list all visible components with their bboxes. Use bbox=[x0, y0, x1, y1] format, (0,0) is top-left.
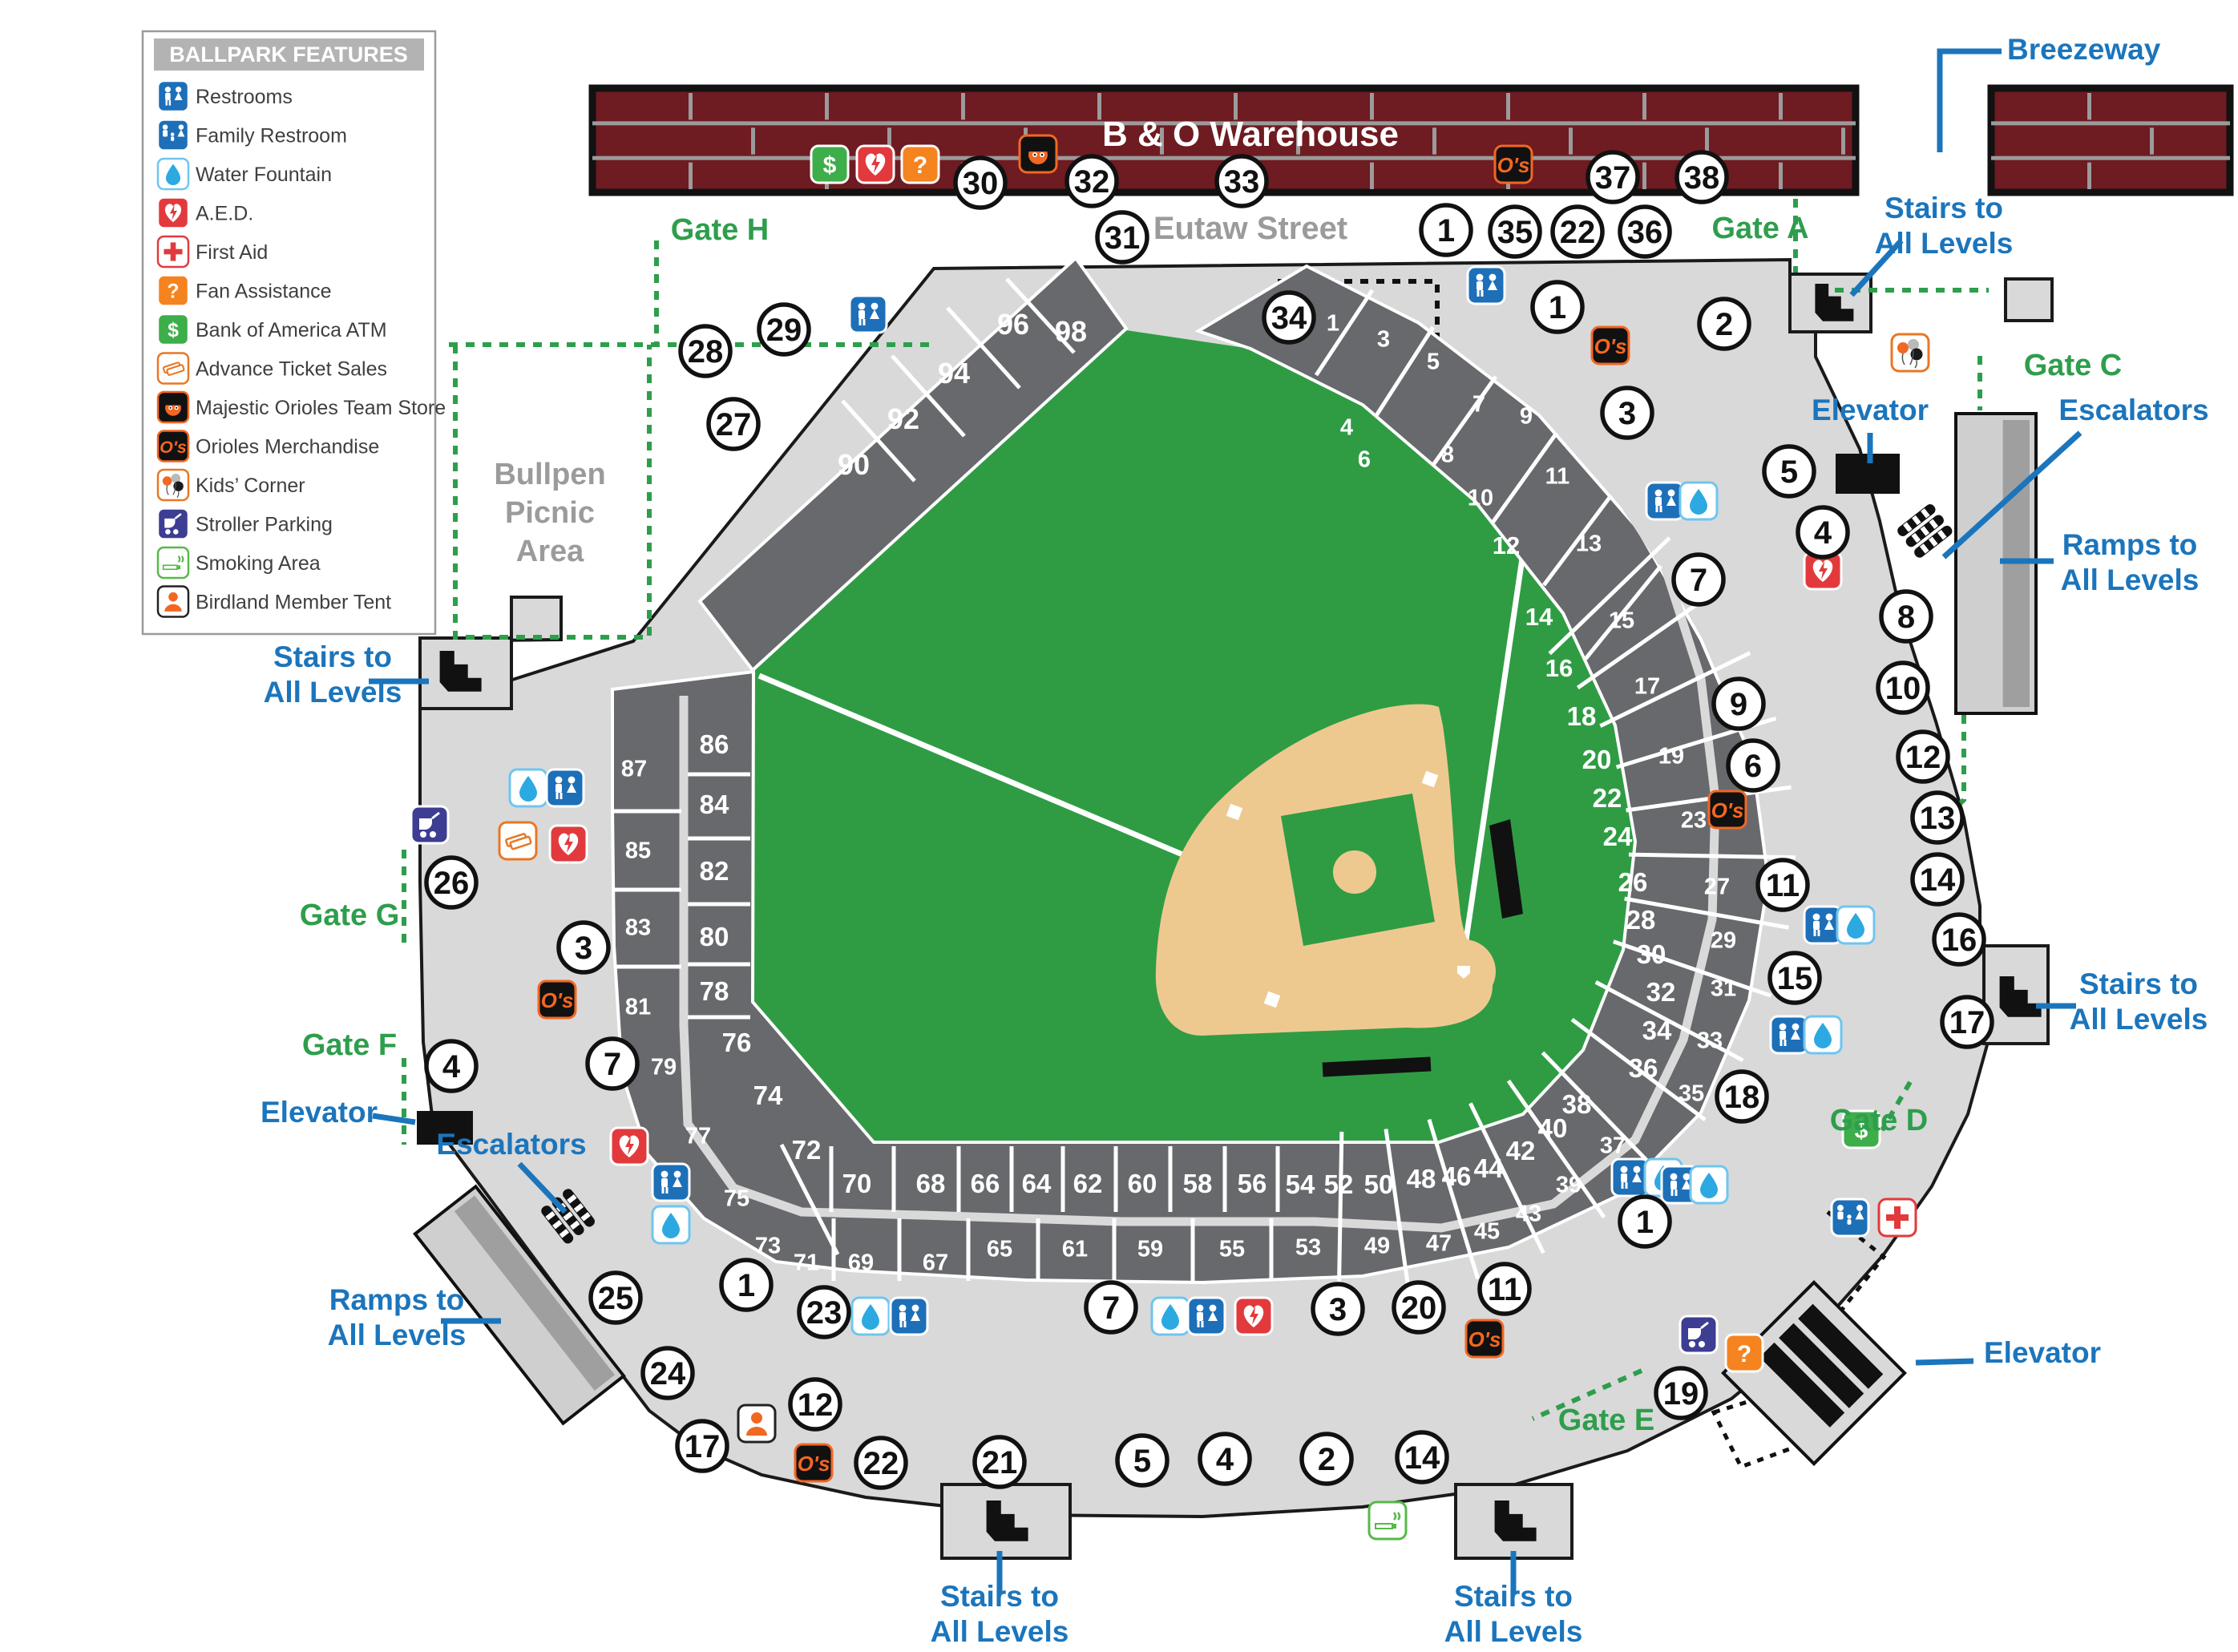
water-icon bbox=[1837, 907, 1874, 943]
section-61: 61 bbox=[1062, 1236, 1088, 1262]
marker-1: 1 bbox=[721, 1260, 771, 1310]
legend-item-label: Water Fountain bbox=[196, 164, 332, 186]
marker-1: 1 bbox=[1620, 1197, 1670, 1246]
icon-glyph bbox=[863, 319, 866, 325]
icon-glyph bbox=[1671, 1190, 1674, 1196]
section-35: 35 bbox=[1678, 1080, 1704, 1106]
section-45: 45 bbox=[1474, 1218, 1500, 1244]
warehouse-wall-right bbox=[1991, 88, 2230, 192]
section-6: 6 bbox=[1358, 446, 1371, 472]
icon-bg bbox=[891, 1298, 927, 1335]
marker-number: 7 bbox=[604, 1047, 621, 1082]
marker-3: 3 bbox=[1313, 1284, 1363, 1334]
section-14: 14 bbox=[1525, 603, 1553, 631]
icon-glyph bbox=[177, 565, 180, 569]
marker-number: 1 bbox=[1636, 1205, 1654, 1240]
brick-wall bbox=[1991, 88, 2230, 192]
icon-glyph bbox=[1655, 490, 1662, 497]
marker-2: 2 bbox=[1699, 299, 1749, 349]
icon-glyph bbox=[1792, 1024, 1800, 1031]
icon-glyph bbox=[666, 1187, 669, 1194]
marker-32: 32 bbox=[1067, 156, 1117, 206]
section-65: 65 bbox=[987, 1236, 1012, 1262]
icon-glyph bbox=[1683, 1173, 1691, 1181]
section-49: 49 bbox=[1364, 1233, 1390, 1258]
marker-12: 12 bbox=[790, 1379, 840, 1429]
elevator-label-left: Elevator bbox=[261, 1096, 378, 1129]
icon-bg bbox=[850, 296, 887, 333]
icon-glyph bbox=[871, 303, 879, 310]
restroom-icon bbox=[158, 81, 188, 111]
merch-icon: O's bbox=[1709, 791, 1746, 828]
marker-number: 29 bbox=[766, 313, 802, 348]
section-54: 54 bbox=[1286, 1169, 1315, 1199]
section-71: 71 bbox=[794, 1250, 819, 1275]
section-79: 79 bbox=[651, 1054, 677, 1080]
brick-grout bbox=[689, 93, 693, 119]
brick-grout bbox=[689, 163, 693, 189]
icon-glyph bbox=[171, 132, 175, 136]
orioles-merchandise-icon: O's bbox=[158, 431, 188, 462]
stairs-label-left: Stairs toAll Levels bbox=[264, 640, 402, 709]
brick-grout bbox=[2150, 127, 2154, 154]
icon-glyph: O's bbox=[160, 438, 187, 457]
icon-glyph bbox=[751, 1412, 762, 1424]
icon-glyph bbox=[568, 777, 576, 784]
icon-glyph bbox=[1392, 1524, 1396, 1529]
icon-glyph bbox=[1477, 281, 1483, 290]
water-icon bbox=[510, 769, 547, 806]
section-28: 28 bbox=[1626, 905, 1656, 935]
marker-number: 36 bbox=[1627, 215, 1663, 250]
annotation-line: Stairs to bbox=[1885, 192, 2003, 224]
restroom-icon bbox=[1646, 483, 1683, 519]
marker-number: 1 bbox=[737, 1268, 755, 1303]
brick-grout bbox=[1779, 163, 1783, 189]
icon-glyph bbox=[904, 1321, 907, 1327]
icon-glyph bbox=[168, 592, 178, 602]
icon-glyph bbox=[1856, 1205, 1863, 1211]
icon-glyph bbox=[1897, 342, 1909, 353]
gate-label-d: Gate D bbox=[1830, 1104, 1928, 1137]
annotation-line: All Levels bbox=[1875, 227, 2014, 260]
icon-glyph bbox=[170, 407, 172, 409]
team-store-icon bbox=[158, 392, 188, 422]
section-94: 94 bbox=[938, 357, 970, 390]
marker-number: 38 bbox=[1684, 160, 1720, 196]
marker-number: 33 bbox=[1224, 164, 1260, 200]
marker-5: 5 bbox=[1117, 1436, 1167, 1485]
icon-glyph bbox=[674, 1171, 681, 1178]
marker-19: 19 bbox=[1656, 1368, 1706, 1418]
marker-number: 2 bbox=[1715, 307, 1733, 342]
marker-3: 3 bbox=[559, 923, 608, 972]
gate-label-h: Gate H bbox=[671, 213, 769, 247]
marker-34: 34 bbox=[1264, 293, 1314, 342]
marker-number: 2 bbox=[1318, 1442, 1335, 1477]
annotation-line: Elevator bbox=[1984, 1336, 2101, 1369]
marker-number: 3 bbox=[575, 931, 592, 966]
aed-icon bbox=[550, 826, 587, 862]
water-icon bbox=[1804, 1016, 1841, 1053]
section-64: 64 bbox=[1022, 1169, 1052, 1198]
icon-glyph bbox=[1847, 1214, 1851, 1218]
section-78: 78 bbox=[700, 976, 729, 1006]
icon-bg bbox=[158, 81, 188, 111]
icon-glyph bbox=[1477, 274, 1484, 281]
marker-36: 36 bbox=[1620, 207, 1670, 256]
icon-glyph bbox=[1837, 1205, 1844, 1211]
icon-bg bbox=[1468, 267, 1505, 304]
icon-glyph: ? bbox=[167, 281, 179, 303]
section-82: 82 bbox=[700, 856, 729, 886]
legend: BALLPARK FEATURESRestroomsFamily Restroo… bbox=[143, 31, 446, 634]
icon-glyph bbox=[560, 793, 563, 799]
icon-glyph: ? bbox=[1737, 1341, 1751, 1367]
kids-corner-icon bbox=[158, 470, 188, 500]
brick-grout bbox=[961, 93, 965, 119]
section-44: 44 bbox=[1474, 1153, 1504, 1183]
icon-glyph: O's bbox=[1468, 1327, 1501, 1351]
icon-glyph bbox=[165, 529, 171, 535]
icon-glyph bbox=[1622, 1182, 1624, 1189]
brick-grout bbox=[1569, 127, 1573, 154]
brick-grout bbox=[592, 156, 1856, 160]
icon-glyph bbox=[1626, 1182, 1628, 1189]
section-83: 83 bbox=[625, 915, 651, 940]
section-37: 37 bbox=[1600, 1133, 1626, 1158]
icon-glyph bbox=[1779, 1024, 1787, 1031]
marker-number: 30 bbox=[963, 166, 999, 201]
gate-label-f: Gate F bbox=[302, 1028, 397, 1062]
marker-8: 8 bbox=[1881, 592, 1931, 641]
legend-title: BALLPARK FEATURES bbox=[169, 42, 408, 67]
annotation-line: All Levels bbox=[2070, 1003, 2208, 1036]
icon-glyph bbox=[1198, 1321, 1200, 1327]
section-46: 46 bbox=[1442, 1161, 1472, 1191]
marker-9: 9 bbox=[1714, 679, 1763, 729]
marker-24: 24 bbox=[643, 1348, 693, 1398]
icon-glyph bbox=[1813, 914, 1820, 921]
section-47: 47 bbox=[1426, 1230, 1452, 1256]
marker-number: 11 bbox=[1766, 868, 1800, 903]
section-18: 18 bbox=[1567, 701, 1597, 731]
legend-item-label: Stroller Parking bbox=[196, 514, 333, 536]
icon-glyph bbox=[1041, 154, 1044, 156]
gate-label-e: Gate E bbox=[1558, 1404, 1654, 1437]
section-69: 69 bbox=[848, 1250, 874, 1275]
icon-glyph: ? bbox=[913, 152, 927, 179]
warehouse-label: B & O Warehouse bbox=[1102, 115, 1399, 154]
water-icon bbox=[652, 1206, 689, 1243]
legend-item-label: A.E.D. bbox=[196, 203, 253, 225]
ticket-sales-icon bbox=[158, 353, 188, 384]
icon-glyph bbox=[1779, 1031, 1786, 1040]
section-75: 75 bbox=[724, 1185, 749, 1211]
brick-grout bbox=[1506, 93, 1510, 119]
icon-glyph bbox=[1780, 1040, 1783, 1046]
marker-number: 24 bbox=[650, 1356, 686, 1391]
icon-glyph bbox=[899, 1305, 907, 1312]
elevator-label-bottom-right: Elevator bbox=[1984, 1336, 2101, 1369]
marker-number: 12 bbox=[1905, 740, 1941, 775]
section-59: 59 bbox=[1137, 1236, 1163, 1262]
brick-grout bbox=[2087, 93, 2091, 119]
atm-icon: $ bbox=[811, 146, 848, 183]
icon-glyph bbox=[556, 793, 559, 799]
stroller-icon bbox=[411, 806, 448, 843]
icon-glyph bbox=[1197, 1305, 1204, 1312]
icon-glyph bbox=[171, 136, 174, 141]
annotation-line: All Levels bbox=[328, 1319, 467, 1351]
icon-bg bbox=[158, 547, 188, 578]
escalators-label-left: Escalators bbox=[436, 1128, 586, 1161]
section-74: 74 bbox=[753, 1080, 783, 1110]
icon-glyph bbox=[179, 124, 184, 130]
restroom-icon bbox=[652, 1164, 689, 1201]
marker-4: 4 bbox=[1798, 507, 1848, 557]
marker-number: 4 bbox=[1814, 515, 1832, 551]
icon-bg bbox=[547, 769, 584, 806]
marker-number: 3 bbox=[1618, 396, 1636, 431]
birdland-icon bbox=[738, 1405, 775, 1442]
escalators-label-right: Escalators bbox=[2058, 394, 2208, 426]
marker-25: 25 bbox=[591, 1273, 640, 1323]
icon-glyph bbox=[912, 1305, 919, 1312]
fan-icon: ? bbox=[902, 146, 939, 183]
marker-number: 6 bbox=[1744, 749, 1762, 784]
icon-glyph bbox=[1489, 274, 1497, 281]
marker-number: 4 bbox=[442, 1049, 461, 1085]
icon-glyph bbox=[1210, 1305, 1217, 1312]
icon-bg bbox=[1804, 907, 1841, 943]
icon-glyph bbox=[1848, 1219, 1852, 1225]
marker-7: 7 bbox=[1674, 555, 1723, 604]
family-icon bbox=[1832, 1199, 1868, 1236]
icon-glyph: O's bbox=[798, 1452, 830, 1476]
section-19: 19 bbox=[1658, 743, 1684, 769]
icon-glyph: O's bbox=[541, 988, 574, 1012]
aed-icon bbox=[857, 146, 894, 183]
icon-glyph bbox=[1481, 290, 1484, 297]
icon-glyph bbox=[858, 303, 866, 310]
brick-grout bbox=[1432, 127, 1436, 154]
marker-number: 34 bbox=[1271, 301, 1307, 336]
restroom-icon bbox=[547, 769, 584, 806]
aed-icon bbox=[1235, 1298, 1272, 1335]
brick-grout bbox=[1370, 163, 1374, 189]
marker-number: 20 bbox=[1401, 1290, 1437, 1326]
icon-glyph bbox=[1656, 506, 1658, 512]
icon-glyph bbox=[1655, 497, 1662, 506]
section-50: 50 bbox=[1364, 1169, 1394, 1199]
section-84: 84 bbox=[700, 790, 729, 819]
legend-item-label: First Aid bbox=[196, 241, 268, 264]
icon-bg bbox=[652, 1164, 689, 1201]
icon-glyph bbox=[858, 310, 865, 319]
section-39: 39 bbox=[1556, 1172, 1582, 1198]
restroom-icon bbox=[850, 296, 887, 333]
merch-icon: O's bbox=[539, 981, 576, 1018]
marker-4: 4 bbox=[1200, 1434, 1250, 1484]
icon-glyph bbox=[899, 1312, 906, 1321]
marker-4: 4 bbox=[426, 1041, 476, 1091]
annotation-line: Ramps to bbox=[2062, 528, 2198, 561]
icon-bg bbox=[1771, 1016, 1808, 1053]
marker-number: 18 bbox=[1724, 1080, 1760, 1115]
section-42: 42 bbox=[1506, 1136, 1536, 1165]
marker-11: 11 bbox=[1480, 1264, 1529, 1314]
annotation-line: Escalators bbox=[436, 1128, 586, 1161]
marker-number: 32 bbox=[1074, 164, 1110, 200]
ramps-label-left: Ramps toAll Levels bbox=[328, 1283, 467, 1351]
brick-grout bbox=[2087, 163, 2091, 189]
brick-grout bbox=[825, 93, 829, 119]
section-72: 72 bbox=[792, 1135, 822, 1165]
section-52: 52 bbox=[1324, 1169, 1354, 1199]
icon-glyph bbox=[163, 130, 168, 136]
marker-number: 4 bbox=[1216, 1442, 1234, 1477]
restroom-icon bbox=[1804, 907, 1841, 943]
icon-glyph bbox=[1202, 1321, 1204, 1327]
section-53: 53 bbox=[1295, 1234, 1321, 1260]
kids-icon bbox=[1892, 334, 1929, 371]
annotation-line: Elevator bbox=[1812, 394, 1929, 426]
icon-glyph bbox=[1813, 921, 1820, 930]
marker-7: 7 bbox=[1086, 1282, 1136, 1332]
icon-glyph bbox=[1670, 1181, 1677, 1190]
section-31: 31 bbox=[1711, 975, 1736, 1001]
ramps-label-right: Ramps toAll Levels bbox=[2061, 528, 2200, 596]
brick-grout bbox=[1642, 163, 1646, 189]
marker-11: 11 bbox=[1758, 860, 1808, 910]
marker-17: 17 bbox=[1942, 997, 1992, 1047]
gate-c-box bbox=[2006, 279, 2052, 321]
section-13: 13 bbox=[1576, 531, 1602, 556]
water-icon bbox=[1680, 483, 1717, 519]
marker-1: 1 bbox=[1533, 282, 1582, 332]
legend-item-label: Fan Assistance bbox=[196, 281, 332, 303]
icon-glyph bbox=[164, 249, 182, 255]
section-77: 77 bbox=[685, 1123, 711, 1149]
family-restroom-icon bbox=[158, 120, 188, 151]
icon-glyph bbox=[165, 87, 171, 92]
gate-label-g: Gate G bbox=[300, 899, 400, 932]
brick-grout bbox=[1779, 93, 1783, 119]
fan-icon: ? bbox=[1726, 1335, 1763, 1371]
section-10: 10 bbox=[1468, 485, 1493, 511]
stairs-label-top-right: Stairs toAll Levels bbox=[1875, 192, 2014, 260]
icon-glyph bbox=[1837, 1212, 1843, 1220]
legend-item-label: Family Restroom bbox=[196, 125, 347, 147]
icon-glyph bbox=[900, 1321, 903, 1327]
marker-number: 7 bbox=[1690, 563, 1707, 598]
icon-glyph: O's bbox=[1711, 798, 1744, 822]
marker-number: 22 bbox=[863, 1446, 899, 1481]
section-24: 24 bbox=[1603, 822, 1633, 851]
section-32: 32 bbox=[1646, 977, 1676, 1007]
section-55: 55 bbox=[1219, 1236, 1245, 1262]
section-33: 33 bbox=[1697, 1028, 1723, 1053]
section-96: 96 bbox=[997, 308, 1029, 341]
icon-glyph bbox=[163, 124, 168, 130]
icon-glyph bbox=[1818, 930, 1820, 936]
marker-number: 19 bbox=[1663, 1376, 1699, 1412]
section-27: 27 bbox=[1704, 874, 1730, 899]
aed-icon bbox=[611, 1128, 648, 1165]
restroom-icon bbox=[1771, 1016, 1808, 1053]
section-17: 17 bbox=[1634, 673, 1660, 699]
fan-assistance-icon: ? bbox=[158, 276, 188, 306]
eutaw-street-label: Eutaw Street bbox=[1153, 211, 1347, 246]
icon-glyph bbox=[555, 777, 563, 784]
stairs-label-right: Stairs toAll Levels bbox=[2070, 967, 2208, 1036]
section-76: 76 bbox=[722, 1028, 752, 1057]
marker-number: 28 bbox=[688, 334, 724, 370]
icon-bg bbox=[1188, 1298, 1225, 1335]
elevator-label-right: Elevator bbox=[1812, 394, 1929, 426]
marker-number: 9 bbox=[1730, 687, 1747, 722]
marker-number: 37 bbox=[1595, 160, 1631, 196]
brick-grout bbox=[1097, 93, 1101, 119]
annotation-line: Escalators bbox=[2058, 394, 2208, 426]
atm-icon: $ bbox=[158, 314, 188, 345]
marker-number: 10 bbox=[1885, 671, 1921, 706]
marker-22: 22 bbox=[1553, 207, 1602, 256]
marker-17: 17 bbox=[677, 1421, 727, 1471]
marker-29: 29 bbox=[759, 305, 809, 354]
section-22: 22 bbox=[1593, 783, 1622, 813]
section-67: 67 bbox=[923, 1250, 948, 1275]
section-92: 92 bbox=[887, 402, 919, 435]
marker-35: 35 bbox=[1490, 207, 1540, 256]
section-40: 40 bbox=[1538, 1113, 1568, 1143]
marker-number: 16 bbox=[1941, 923, 1977, 958]
smoking-area-icon bbox=[158, 547, 188, 578]
marker-number: 21 bbox=[982, 1445, 1018, 1480]
section-5: 5 bbox=[1427, 349, 1440, 374]
marker-6: 6 bbox=[1728, 741, 1778, 790]
section-3: 3 bbox=[1377, 326, 1390, 352]
brick-grout bbox=[751, 127, 755, 154]
legend-item-label: Bank of America ATM bbox=[196, 319, 387, 341]
marker-18: 18 bbox=[1717, 1072, 1767, 1121]
marker-number: 3 bbox=[1329, 1292, 1347, 1327]
leader-line bbox=[373, 1116, 415, 1122]
icon-glyph bbox=[1814, 930, 1816, 936]
marker-22: 22 bbox=[856, 1438, 906, 1488]
icon-glyph bbox=[430, 831, 436, 838]
section-20: 20 bbox=[1582, 745, 1612, 774]
annotation-line: Stairs to bbox=[273, 640, 392, 673]
icon-glyph bbox=[420, 831, 426, 838]
icon-glyph: O's bbox=[1594, 334, 1627, 358]
icon-bg bbox=[158, 470, 188, 500]
stadium-map-svg: $?O'sO'sO'sO'sO'sO's?$303233313738135223… bbox=[0, 0, 2238, 1648]
marker-number: 5 bbox=[1780, 454, 1798, 490]
stairs-label-bottom-mid: Stairs toAll Levels bbox=[1444, 1580, 1583, 1648]
firstaid-icon bbox=[1879, 1199, 1916, 1236]
aed-icon bbox=[158, 198, 188, 228]
section-29: 29 bbox=[1711, 927, 1736, 953]
marker-number: 35 bbox=[1497, 215, 1533, 250]
marker-number: 14 bbox=[1920, 862, 1956, 898]
marker-20: 20 bbox=[1394, 1282, 1444, 1332]
brick-grout bbox=[1841, 127, 1845, 154]
marker-33: 33 bbox=[1217, 156, 1266, 206]
section-12: 12 bbox=[1493, 531, 1520, 559]
restroom-icon bbox=[1612, 1159, 1649, 1196]
